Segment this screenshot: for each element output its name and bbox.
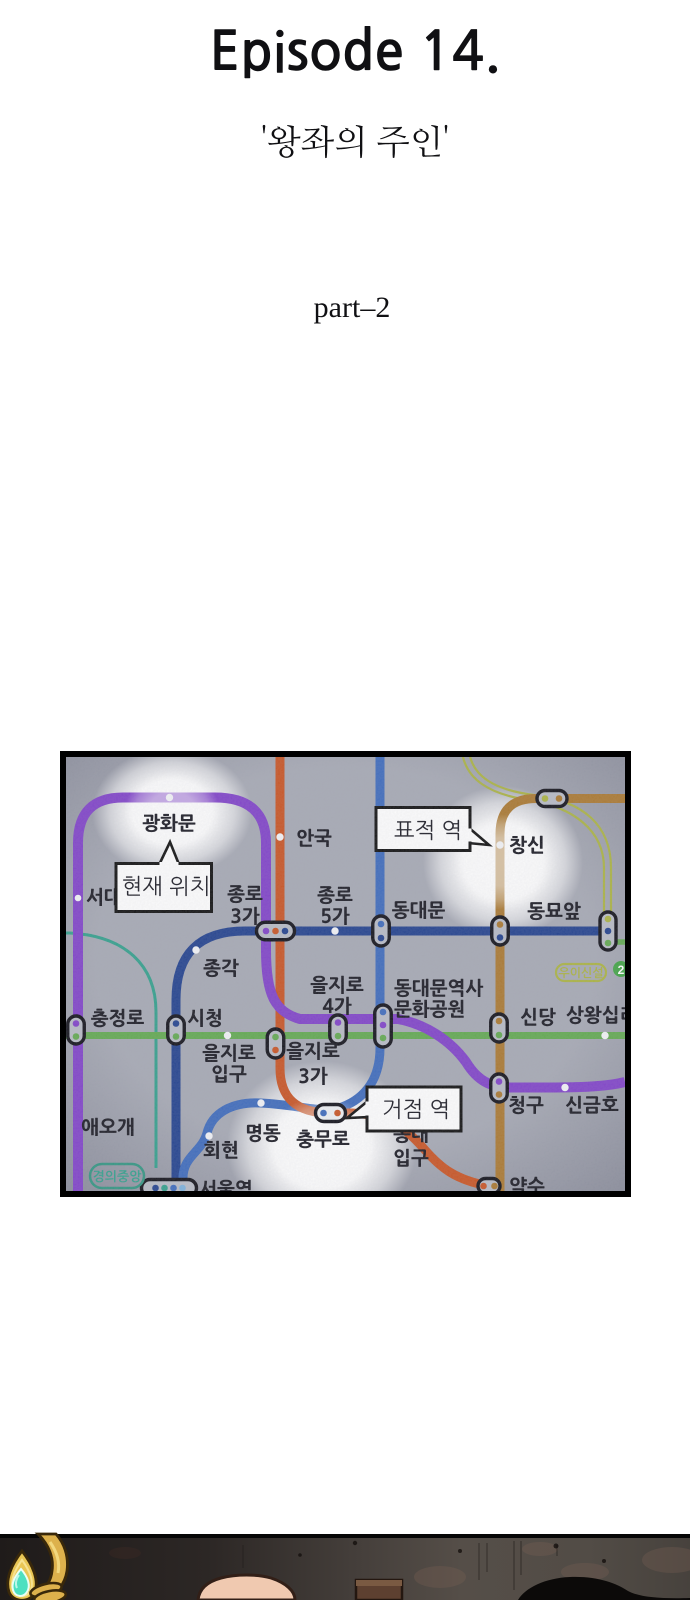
svg-text:part–2: part–2 — [314, 291, 391, 324]
